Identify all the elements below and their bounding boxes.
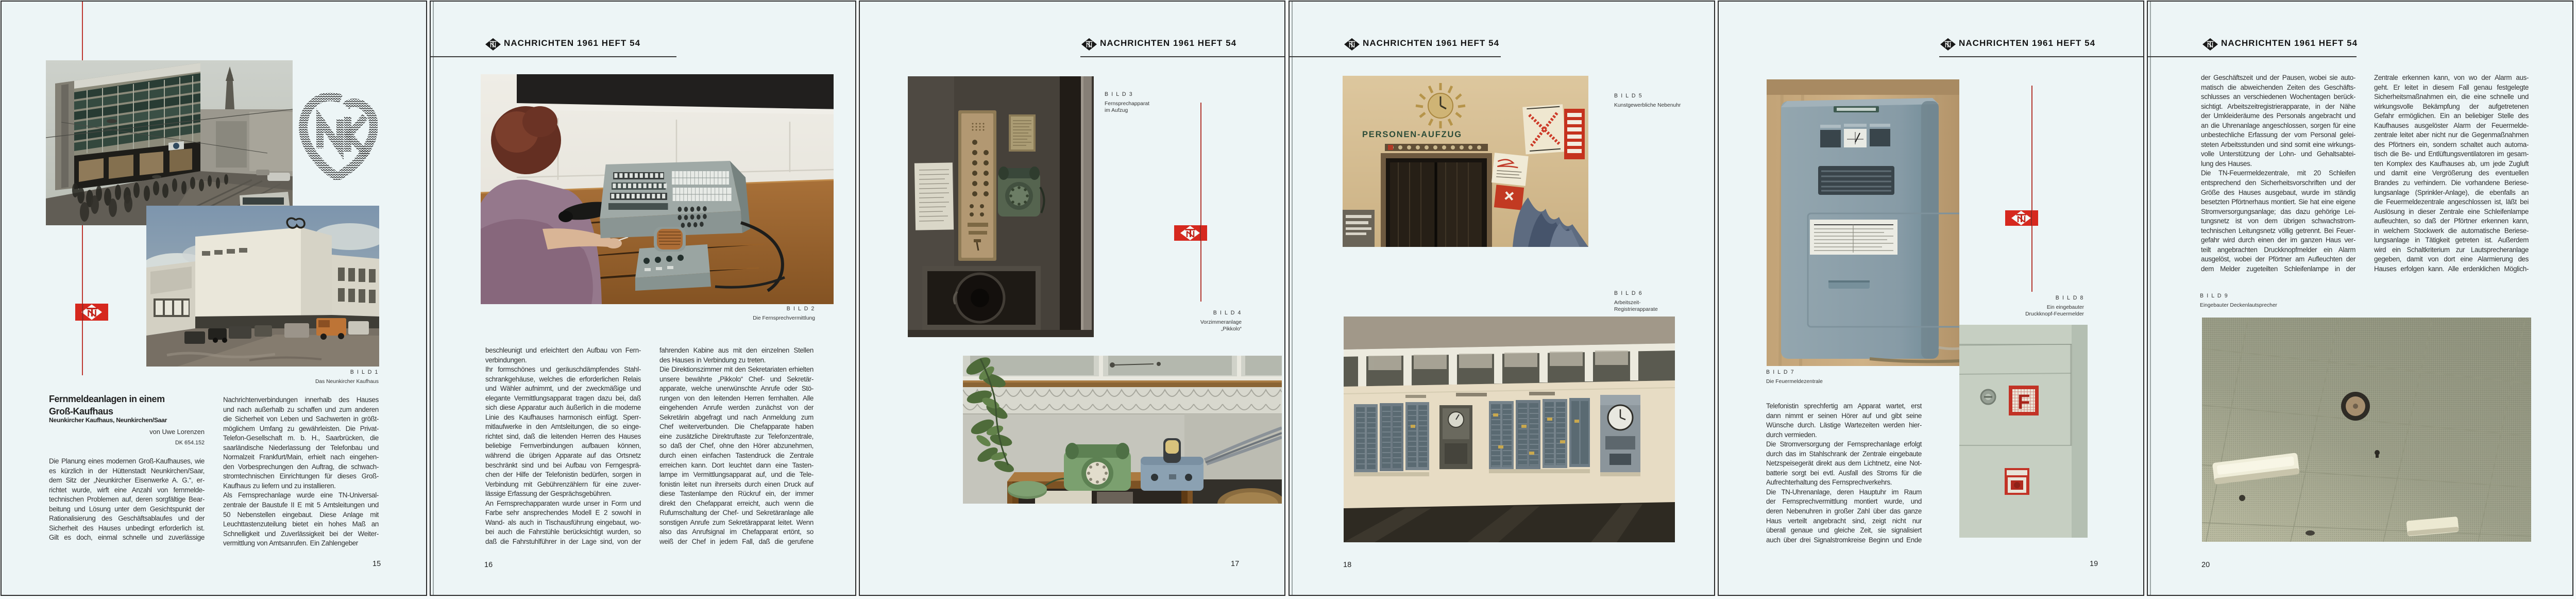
svg-text:F: F: [2018, 391, 2030, 413]
svg-text:PERSONEN-AUFZUG: PERSONEN-AUFZUG: [1362, 130, 1462, 139]
